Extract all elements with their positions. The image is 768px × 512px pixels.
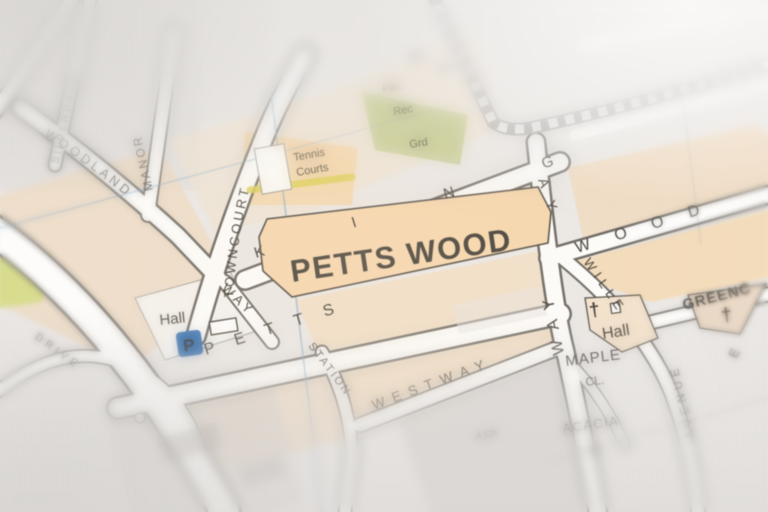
road-label-maple-cl: CL. xyxy=(585,373,605,389)
street-map: P † † † † PETTS WOOD TOWNCOURT WAY WOODL… xyxy=(0,0,768,512)
road-label-acacia-cl: CL. xyxy=(586,444,605,458)
block xyxy=(100,0,270,120)
mini-roundabout xyxy=(135,413,145,423)
poi-label-hall-west: Hall xyxy=(159,309,186,329)
map-photo: P † † † † PETTS WOOD TOWNCOURT WAY WOODL… xyxy=(0,0,768,512)
road xyxy=(585,8,768,45)
